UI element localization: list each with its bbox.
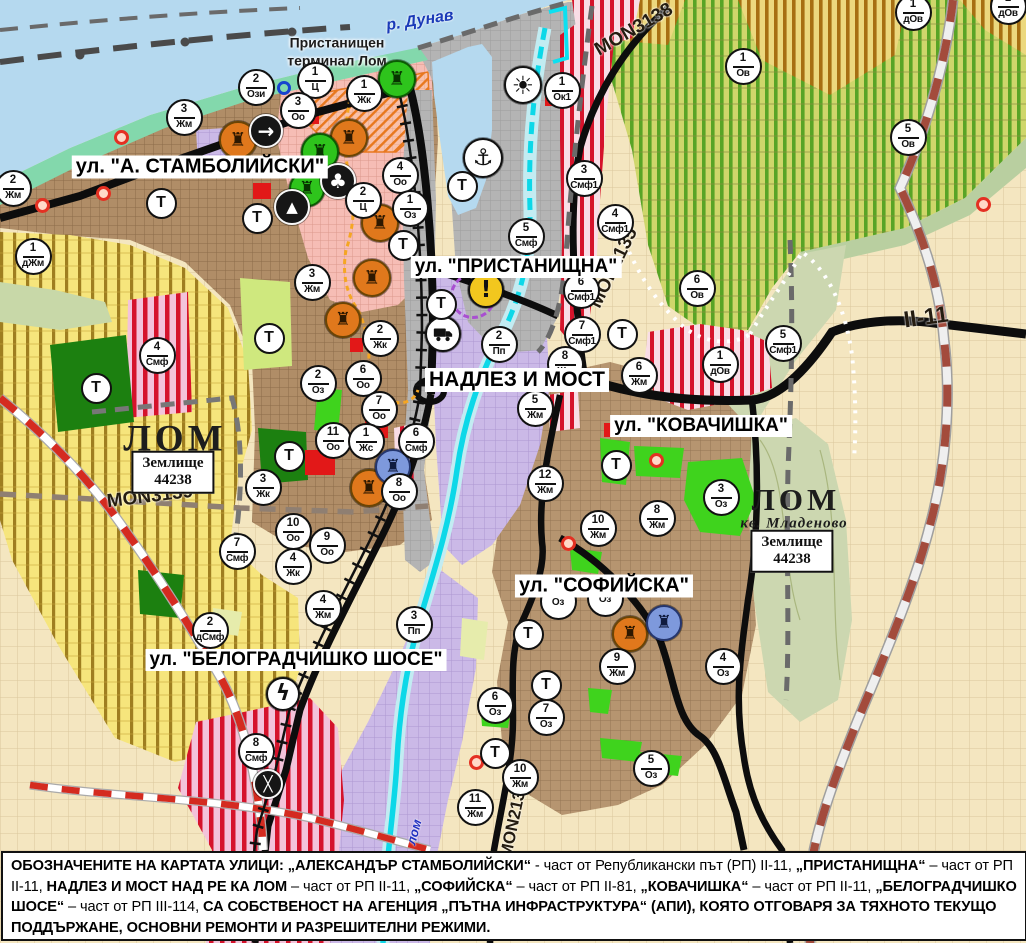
- terrain-badge: Т: [242, 203, 273, 234]
- footer-segment: НАДЛЕЗ И МОСТ НАД РЕ КА ЛОМ: [47, 879, 288, 895]
- zone-badge: 2Оз: [300, 365, 337, 402]
- zone-badge: 2Ози: [238, 69, 275, 106]
- zone-badge: 1Жс: [348, 423, 385, 460]
- footer-note: ОБОЗНАЧЕНИТЕ НА КАРТАТА УЛИЦИ: „АЛЕКСАНД…: [1, 851, 1026, 941]
- terrain-badge: Т: [254, 323, 285, 354]
- street-label: ул. "СОФИЙСКА": [515, 575, 693, 598]
- landholding-box: Землище44238: [750, 530, 833, 573]
- terrain-badge: Т: [81, 373, 112, 404]
- street-label: ул. "БЕЛОГРАДЧИШКО ШОСЕ": [146, 649, 447, 671]
- zone-badge: 2Ц: [345, 182, 382, 219]
- lightning-icon: ϟ: [266, 677, 300, 711]
- footer-segment: – част от РП II-11,: [748, 879, 875, 895]
- zone-badge: 9Оо: [309, 527, 346, 564]
- sun-icon: ☀: [504, 66, 542, 104]
- street-label: ул. "КОВАЧИШКА": [610, 415, 792, 437]
- zone-badge: 10Жм: [580, 510, 617, 547]
- zone-badge: 6Ов: [679, 270, 716, 307]
- zone-badge: 10Оо: [275, 513, 312, 550]
- zone-badge: 7Смф: [219, 533, 256, 570]
- monument-icon: ♜: [353, 259, 391, 297]
- zone-badge: 6Оз: [477, 687, 514, 724]
- monument-blue-icon: ♜: [646, 605, 682, 641]
- poi-red-dot: [96, 186, 111, 201]
- footer-segment: - част от Републикански път (РП) II-11,: [531, 858, 796, 874]
- zone-badge: 5Ов: [890, 119, 927, 156]
- footer-segment: „СОФИЙСКА“: [414, 879, 513, 895]
- monument-green-icon: ♜: [378, 60, 416, 98]
- terrain-badge: Т: [274, 441, 305, 472]
- zone-badge: 3Смф1: [566, 160, 603, 197]
- zone-badge: 1дЖм: [15, 238, 52, 275]
- terrain-badge: Т: [601, 450, 632, 481]
- zone-badge: 7Оз: [528, 699, 565, 736]
- footer-segment: „АЛЕКСАНДЪР СТАМБОЛИЙСКИ“: [288, 858, 531, 874]
- zone-badge: 4Оо: [382, 157, 419, 194]
- terrain-badge: Т: [426, 289, 457, 320]
- zone-badge: 5Жм: [517, 390, 554, 427]
- zone-badge: 4Жм: [305, 590, 342, 627]
- peak-icon: ▲: [274, 189, 310, 225]
- zone-badge: 4Смф1: [597, 204, 634, 241]
- zone-badge: 7Оо: [361, 391, 398, 428]
- poi-red-dot: [35, 198, 50, 213]
- zone-badge: 1Оз: [392, 190, 429, 227]
- terrain-badge: Т: [447, 171, 478, 202]
- monument-icon: ♜: [325, 302, 361, 338]
- zone-badge: 3Жм: [294, 264, 331, 301]
- poi-red-dot: [114, 130, 129, 145]
- zone-badge: 10Жм: [502, 759, 539, 796]
- terrain-badge: Т: [607, 319, 638, 350]
- zone-badge: 8Жм: [639, 500, 676, 537]
- footer-segment: ОБОЗНАЧЕНИТЕ НА КАРТАТА УЛИЦИ:: [11, 858, 288, 874]
- zone-badge: 4Смф: [139, 337, 176, 374]
- zone-badge: 6Смф: [398, 423, 435, 460]
- zone-badge: 12Жм: [527, 465, 564, 502]
- poi-red-dot: [649, 453, 664, 468]
- landholding-box: Землище44238: [131, 451, 214, 494]
- zone-badge: 1Ов: [725, 48, 762, 85]
- zone-badge: 5Оз: [633, 750, 670, 787]
- street-label: ул. "ПРИСТАНИЩНА": [411, 256, 622, 278]
- zone-badge: 2Жк: [362, 320, 399, 357]
- poi-red-dot: [561, 536, 576, 551]
- monument-icon: ♜: [612, 616, 648, 652]
- zone-badge: 2Жм: [0, 170, 32, 207]
- road-number-label: II-11: [902, 301, 950, 334]
- street-label: НАДЛЕЗ И МОСТ: [425, 368, 609, 392]
- street-label: ул. "А. СТАМБОЛИЙСКИ": [72, 156, 328, 179]
- poi-red-dot: [976, 197, 991, 212]
- zone-badge: 9Жм: [599, 648, 636, 685]
- zone-badge: 2Пп: [481, 326, 518, 363]
- zone-badge: 3Пп: [396, 606, 433, 643]
- zone-badge: 8Оо: [381, 473, 418, 510]
- map-canvas: Пристанищентерминал Лом 2Ози1Ц3Оо1Жк1Ок1…: [0, 0, 1026, 943]
- zone-badge: 5Смф1: [765, 325, 802, 362]
- footer-segment: „ПРИСТАНИЩНА“: [796, 858, 926, 874]
- footer-segment: – част от РП II-11,: [287, 879, 414, 895]
- road-number-label: MON3138: [591, 0, 677, 61]
- crossing-icon: ╳: [253, 769, 283, 799]
- zone-badge: 8Смф: [238, 733, 275, 770]
- port-terminal-label: Пристанищентерминал Лом: [287, 35, 387, 70]
- river-label: р. Дунав: [385, 7, 455, 35]
- zone-badge: 1Ок1: [544, 72, 581, 109]
- zone-badge: 2дСмф: [192, 612, 229, 649]
- footer-segment: – част от РП III-114,: [64, 899, 203, 915]
- zone-badge: 6Жм: [621, 357, 658, 394]
- city-label: ЛОМ: [752, 482, 840, 518]
- zone-badge: 4Оз: [705, 648, 742, 685]
- truck-icon: [425, 316, 461, 352]
- arrow-circle-icon: →: [249, 114, 283, 148]
- zone-badge: 3Оз: [703, 479, 740, 516]
- terrain-badge: Т: [531, 670, 562, 701]
- footer-segment: „КОВАЧИШКА“: [641, 879, 749, 895]
- zone-badge: 3Оо: [280, 92, 317, 129]
- terrain-badge: Т: [480, 738, 511, 769]
- zone-badge: 5Смф: [508, 218, 545, 255]
- terrain-badge: Т: [146, 188, 177, 219]
- zone-badge: 11Оо: [315, 422, 352, 459]
- zone-badge: 3Жк: [245, 469, 282, 506]
- terrain-badge: Т: [513, 619, 544, 650]
- zone-badge: 11Жм: [457, 789, 494, 826]
- poi-blue-ring: [277, 81, 291, 95]
- zone-badge: 1дОв: [702, 346, 739, 383]
- map-annotations: Пристанищентерминал Лом 2Ози1Ц3Оо1Жк1Ок1…: [0, 0, 1026, 943]
- zone-badge: 1Жк: [346, 75, 383, 112]
- zone-badge: 1дОв: [990, 0, 1026, 25]
- zone-badge: 3Жм: [166, 99, 203, 136]
- zone-badge: 4Жк: [275, 548, 312, 585]
- footer-segment: – част от РП II-81,: [513, 879, 641, 895]
- river-label: лом: [403, 818, 424, 846]
- zone-badge: 1дОв: [895, 0, 932, 31]
